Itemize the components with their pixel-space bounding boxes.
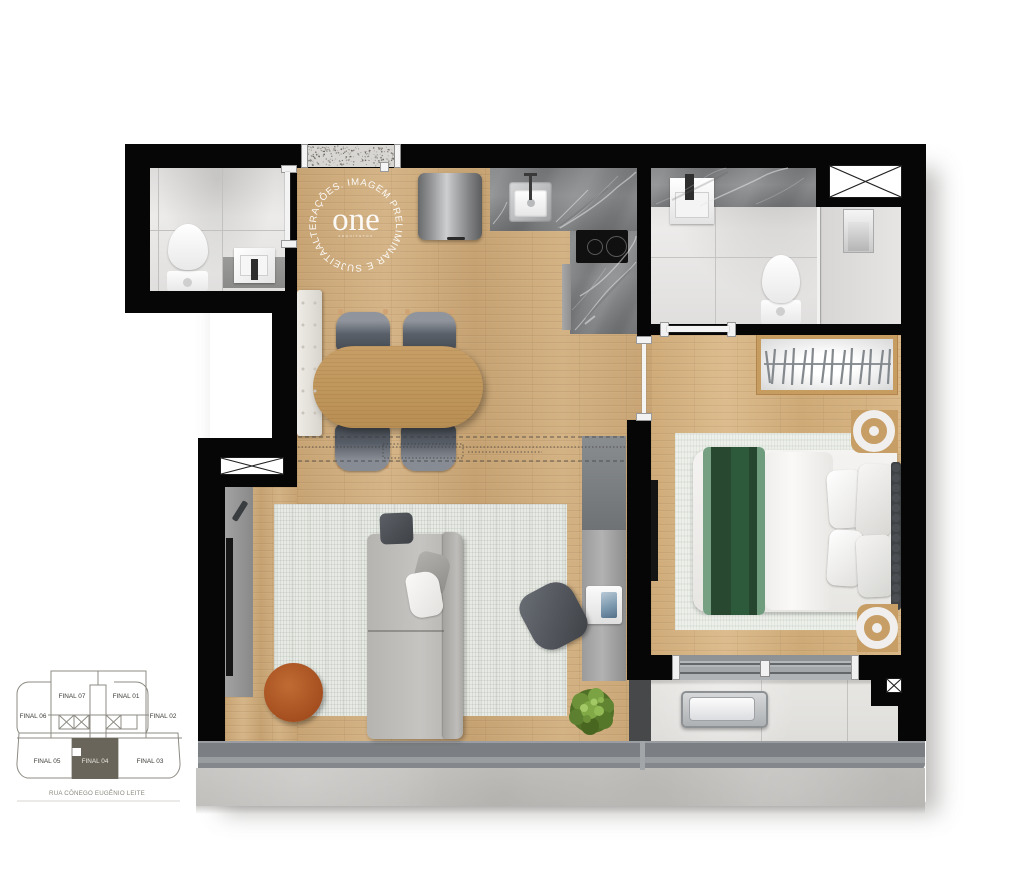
- svg-text:FINAL 05: FINAL 05: [34, 758, 61, 765]
- svg-text:FINAL 02: FINAL 02: [150, 713, 177, 720]
- svg-text:FINAL 07: FINAL 07: [59, 693, 86, 700]
- svg-text:one: one: [332, 202, 380, 238]
- svg-text:FINAL 03: FINAL 03: [137, 758, 164, 765]
- svg-text:ARQUITETOS: ARQUITETOS: [338, 234, 373, 238]
- svg-text:FINAL 01: FINAL 01: [113, 693, 140, 700]
- svg-text:RUA CÔNEGO EUGÊNIO LEITE: RUA CÔNEGO EUGÊNIO LEITE: [49, 789, 145, 797]
- svg-text:FINAL 06: FINAL 06: [20, 713, 47, 720]
- svg-text:FINAL 04: FINAL 04: [82, 758, 109, 765]
